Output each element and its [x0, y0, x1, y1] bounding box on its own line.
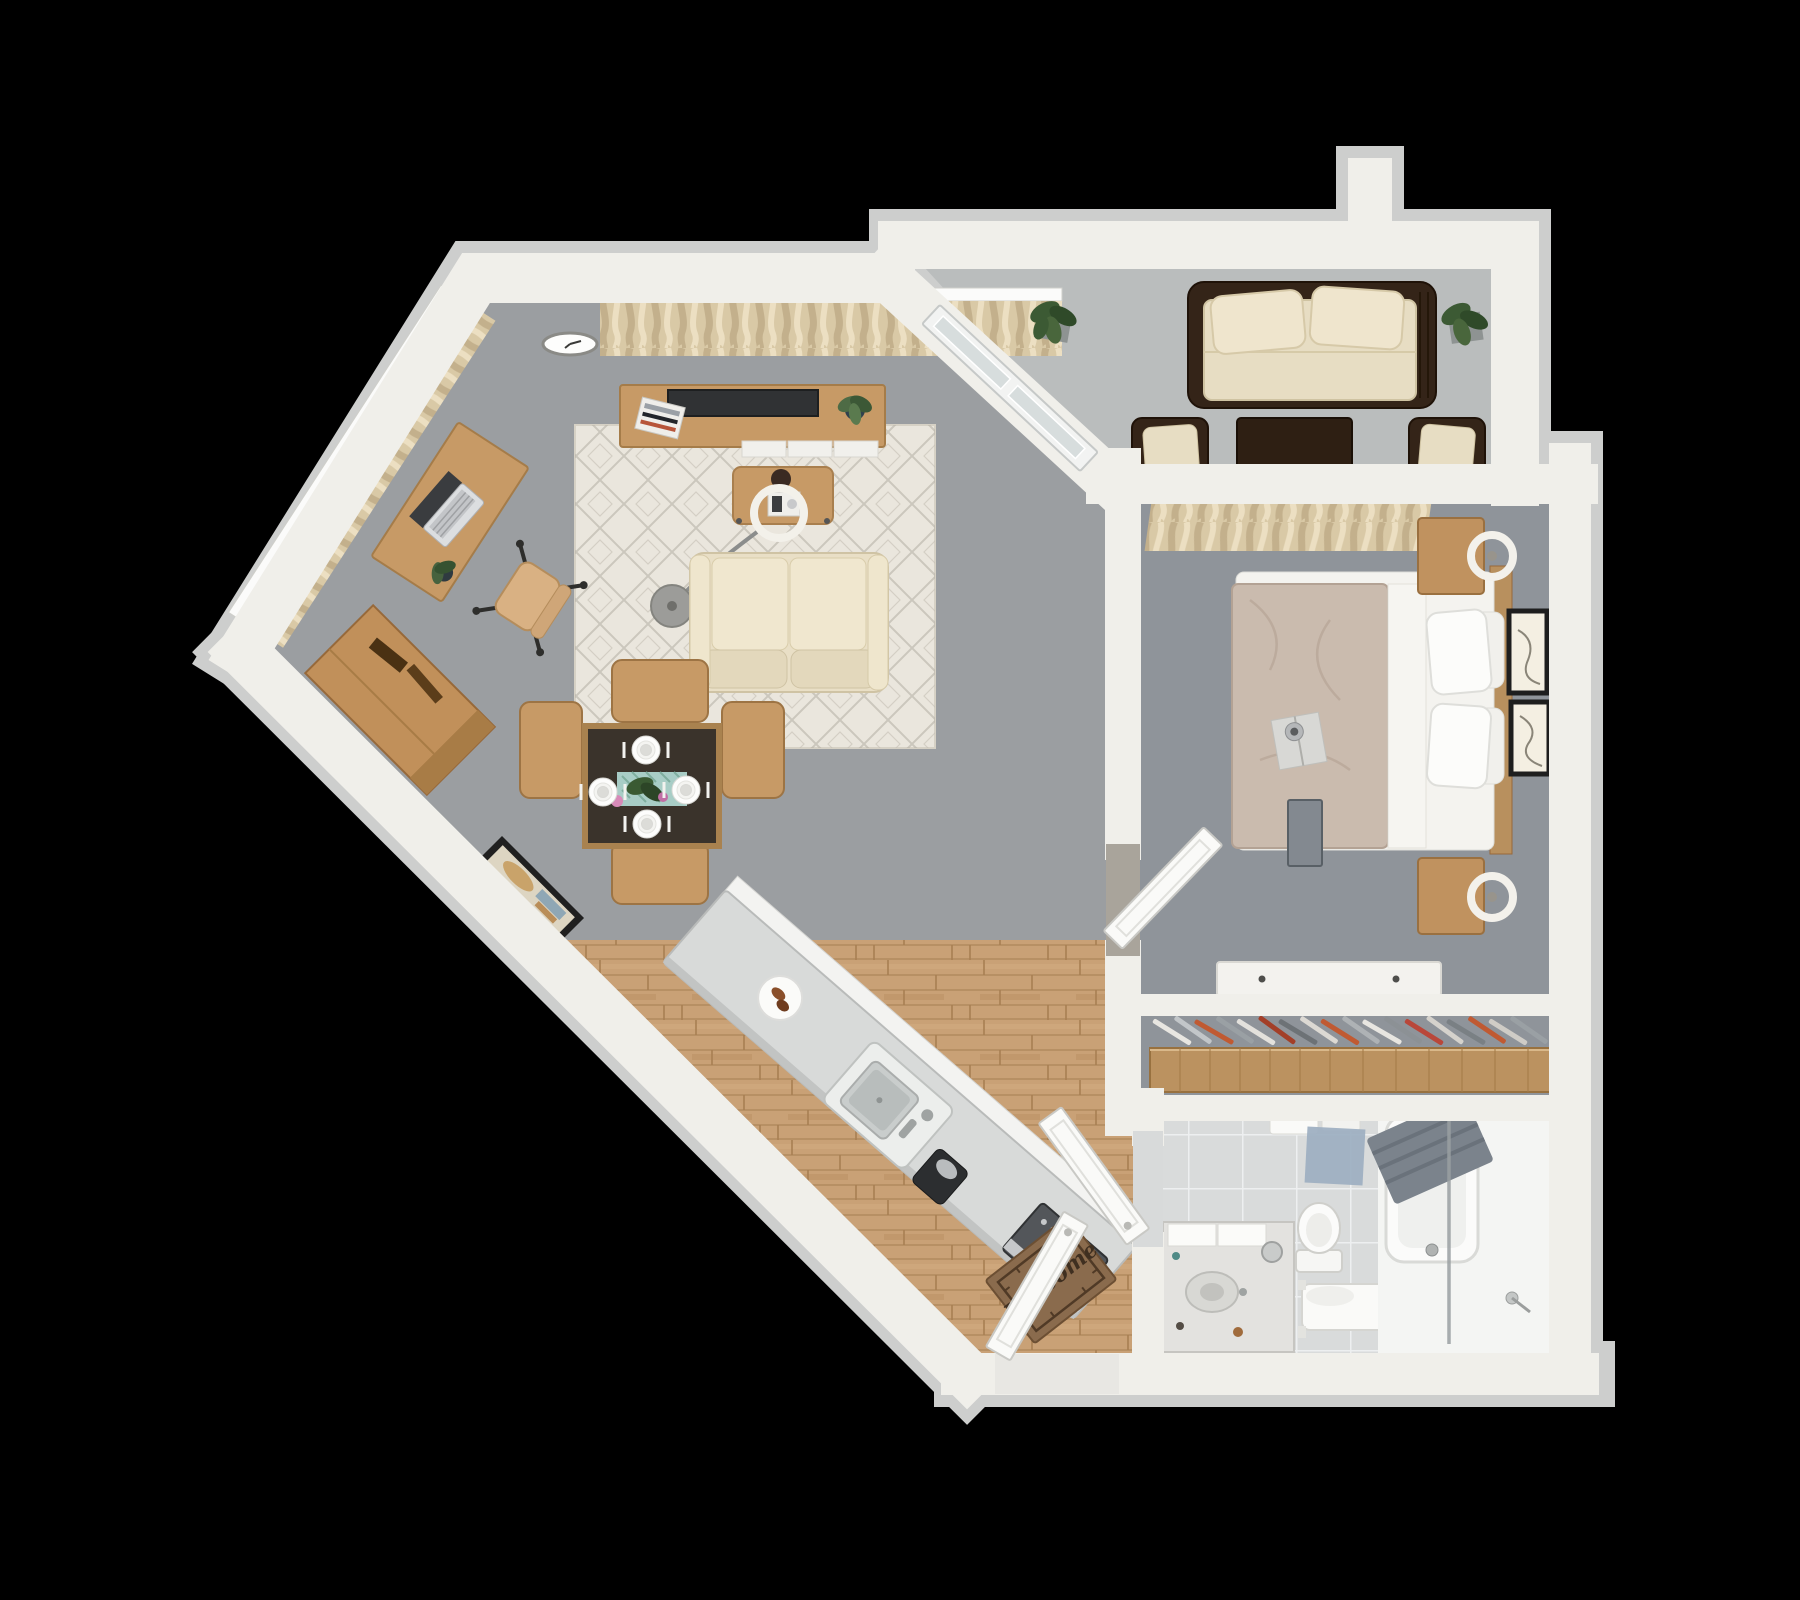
- outdoor-coffee-table: [1237, 418, 1352, 472]
- tv-console: [620, 385, 885, 457]
- framed-art: [1509, 611, 1547, 693]
- dining-chair-east: [722, 702, 784, 798]
- toilet: [1296, 1203, 1342, 1272]
- floor-plan-stage: Welcome: [0, 0, 1800, 1600]
- framed-art: [1511, 702, 1549, 774]
- book-and-mug: [1271, 712, 1327, 770]
- sheet-fold: [1388, 584, 1426, 848]
- dining-chair-west: [520, 702, 582, 798]
- bedroom-wall-tv: [1288, 800, 1322, 866]
- floor-plan-svg: Welcome: [0, 0, 1800, 1600]
- bed: [1232, 566, 1512, 854]
- dining-chair-south: [612, 842, 708, 904]
- sofa: [690, 553, 888, 692]
- closet-rod-shelf: [1150, 1048, 1550, 1092]
- television: [668, 390, 818, 416]
- blue-bath-mat: [1305, 1127, 1366, 1186]
- white-console: [1217, 962, 1441, 996]
- trash-bin: [1262, 1242, 1282, 1262]
- tub-faucet: [1426, 1244, 1438, 1256]
- outdoor-pillow: [1210, 289, 1307, 355]
- outdoor-wicker-sofa: [1188, 282, 1436, 408]
- wall-clock: [543, 333, 597, 355]
- coffee-table: [733, 467, 833, 524]
- entry-threshold: [995, 1354, 1119, 1394]
- outdoor-pillow: [1309, 286, 1405, 350]
- dining-chair-north: [612, 660, 708, 722]
- dining-table: [581, 726, 719, 846]
- bathtub-zone: [1366, 1095, 1550, 1354]
